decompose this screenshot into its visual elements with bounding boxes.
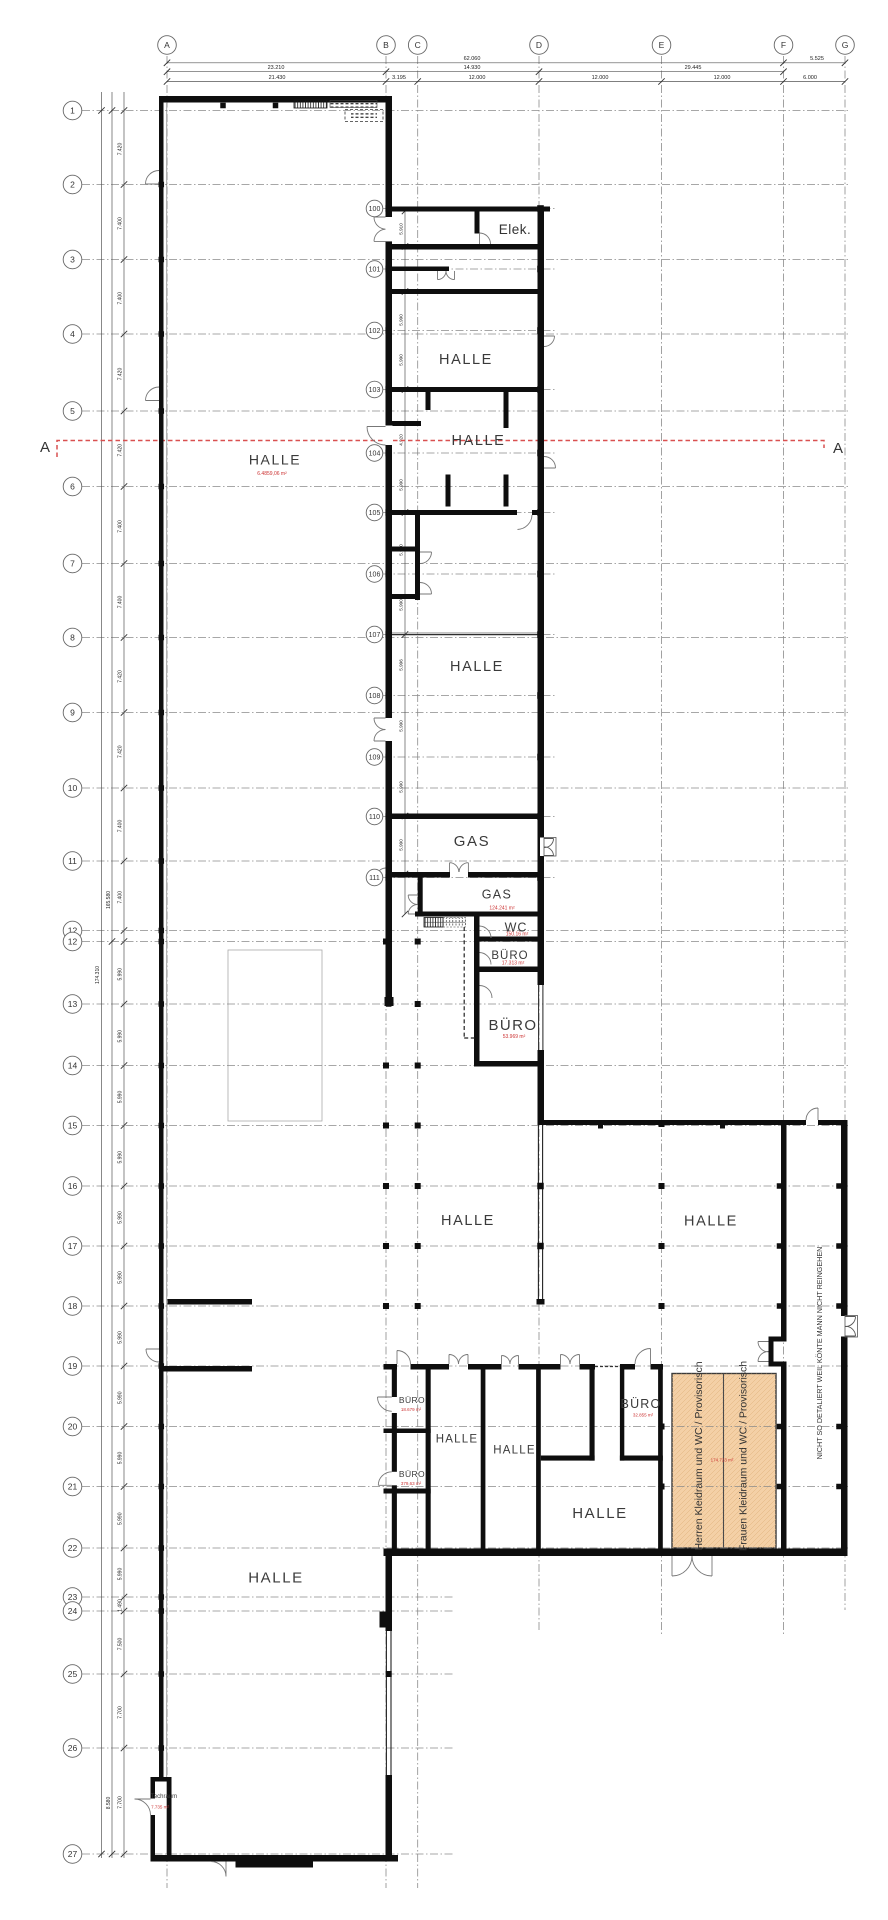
svg-text:7: 7 — [70, 559, 75, 569]
svg-text:7.400: 7.400 — [118, 292, 124, 305]
svg-text:GAS: GAS — [482, 888, 513, 902]
svg-text:F: F — [781, 40, 786, 50]
svg-text:1.490: 1.490 — [118, 1599, 124, 1612]
svg-text:7.500: 7.500 — [118, 1638, 124, 1651]
svg-text:5.910: 5.910 — [399, 223, 404, 235]
svg-text:24: 24 — [68, 1606, 78, 1616]
svg-text:22: 22 — [68, 1543, 78, 1553]
svg-text:108: 108 — [369, 693, 381, 700]
svg-text:A: A — [40, 439, 50, 456]
svg-text:5.996: 5.996 — [399, 659, 404, 671]
svg-text:7.400: 7.400 — [118, 520, 124, 533]
svg-text:5.990: 5.990 — [399, 354, 404, 366]
svg-text:7.420: 7.420 — [118, 368, 124, 381]
svg-text:7.420: 7.420 — [118, 670, 124, 683]
svg-text:5.990: 5.990 — [118, 1091, 124, 1104]
svg-text:5.990: 5.990 — [399, 781, 404, 793]
svg-text:102: 102 — [369, 328, 381, 335]
svg-text:5.990: 5.990 — [118, 1512, 124, 1525]
svg-text:GAS: GAS — [454, 833, 490, 850]
svg-text:D: D — [536, 40, 542, 50]
svg-text:G: G — [842, 40, 849, 50]
svg-text:2: 2 — [70, 180, 75, 190]
svg-text:5.990: 5.990 — [118, 1271, 124, 1284]
svg-text:BÜRO: BÜRO — [399, 1395, 425, 1405]
svg-text:7.700: 7.700 — [118, 1796, 124, 1809]
svg-text:16: 16 — [68, 1181, 78, 1191]
svg-text:17.313 m²: 17.313 m² — [502, 961, 525, 967]
svg-text:32.855 m²: 32.855 m² — [633, 1413, 654, 1418]
svg-text:5.990: 5.990 — [118, 968, 124, 981]
svg-text:12.000: 12.000 — [714, 75, 731, 81]
svg-text:7.735 m²: 7.735 m² — [151, 1805, 169, 1810]
svg-text:165.580: 165.580 — [106, 891, 112, 909]
svg-text:7.420: 7.420 — [118, 444, 124, 457]
svg-text:26: 26 — [68, 1743, 78, 1753]
svg-text:25: 25 — [68, 1669, 78, 1679]
svg-text:HALLE: HALLE — [452, 433, 506, 449]
svg-text:7.400: 7.400 — [118, 596, 124, 609]
svg-text:23.210: 23.210 — [268, 65, 285, 71]
svg-text:7.400: 7.400 — [118, 891, 124, 904]
svg-text:21.430: 21.430 — [269, 75, 286, 81]
svg-text:9: 9 — [70, 708, 75, 718]
svg-text:3.195: 3.195 — [392, 75, 406, 81]
svg-text:11: 11 — [68, 856, 77, 866]
svg-text:12.000: 12.000 — [592, 75, 609, 81]
svg-text:HALLE: HALLE — [436, 1434, 478, 1446]
svg-text:19: 19 — [68, 1361, 78, 1371]
svg-text:174.723 m²: 174.723 m² — [711, 1458, 734, 1463]
svg-text:18: 18 — [68, 1301, 78, 1311]
svg-text:4: 4 — [70, 329, 75, 339]
svg-text:5.990: 5.990 — [399, 314, 404, 326]
svg-text:110: 110 — [369, 814, 380, 821]
svg-text:A: A — [833, 440, 843, 457]
svg-text:104: 104 — [369, 451, 381, 458]
svg-text:BÜRO: BÜRO — [399, 1469, 425, 1479]
svg-text:150.16 m²: 150.16 m² — [506, 932, 529, 938]
svg-text:15: 15 — [68, 1121, 78, 1131]
svg-text:7.420: 7.420 — [118, 745, 124, 758]
svg-text:HALLE: HALLE — [441, 1213, 495, 1229]
svg-text:C: C — [415, 40, 421, 50]
svg-text:100: 100 — [369, 206, 381, 213]
svg-text:5.990: 5.990 — [399, 479, 404, 491]
svg-text:109: 109 — [369, 755, 381, 762]
svg-text:5.990: 5.990 — [118, 1030, 124, 1043]
svg-text:HALLE: HALLE — [249, 452, 301, 468]
svg-text:8.580: 8.580 — [106, 1797, 112, 1810]
svg-text:HALLE: HALLE — [248, 1570, 304, 1587]
svg-text:7.420: 7.420 — [118, 143, 124, 156]
svg-text:14.930: 14.930 — [464, 65, 481, 71]
svg-text:5.990: 5.990 — [118, 1211, 124, 1224]
svg-text:20: 20 — [68, 1422, 78, 1432]
svg-text:Elek.: Elek. — [499, 222, 532, 237]
svg-text:5.990: 5.990 — [399, 839, 404, 851]
svg-text:106: 106 — [369, 572, 381, 579]
svg-text:103: 103 — [369, 387, 381, 394]
svg-text:10: 10 — [68, 783, 78, 793]
svg-text:HALLE: HALLE — [439, 352, 493, 368]
svg-text:BÜRO: BÜRO — [489, 1016, 538, 1034]
svg-text:5: 5 — [70, 406, 75, 416]
svg-text:5.990: 5.990 — [399, 599, 404, 611]
svg-text:7.700: 7.700 — [118, 1706, 124, 1719]
svg-text:124.241 m²: 124.241 m² — [489, 906, 515, 912]
svg-text:E: E — [659, 40, 665, 50]
svg-text:5.990: 5.990 — [118, 1452, 124, 1465]
svg-text:14: 14 — [68, 1061, 78, 1071]
svg-text:6.000: 6.000 — [803, 75, 817, 81]
svg-text:105: 105 — [369, 510, 381, 517]
svg-text:1: 1 — [70, 106, 75, 116]
svg-text:12: 12 — [68, 937, 78, 947]
svg-text:5.990: 5.990 — [118, 1331, 124, 1344]
svg-text:101: 101 — [369, 267, 381, 274]
svg-text:BÜRO: BÜRO — [621, 1397, 662, 1411]
svg-text:5.990: 5.990 — [118, 1391, 124, 1404]
svg-text:HALLE: HALLE — [572, 1505, 628, 1522]
svg-text:27: 27 — [68, 1849, 78, 1859]
svg-text:111: 111 — [369, 875, 380, 882]
svg-text:B: B — [383, 40, 389, 50]
svg-text:Herren Kleidraum und WC / Prov: Herren Kleidraum und WC / Provisorisch — [693, 1361, 705, 1550]
svg-text:HALLE: HALLE — [493, 1445, 535, 1457]
svg-text:21: 21 — [68, 1482, 78, 1492]
svg-text:12.000: 12.000 — [469, 75, 486, 81]
svg-text:29.445: 29.445 — [685, 65, 702, 71]
svg-text:53.969 m²: 53.969 m² — [503, 1034, 526, 1040]
svg-text:5.525: 5.525 — [810, 56, 824, 62]
svg-text:5.990: 5.990 — [399, 720, 404, 732]
svg-text:HALLE: HALLE — [684, 1214, 738, 1230]
svg-text:13: 13 — [68, 999, 78, 1009]
svg-text:HALLE: HALLE — [450, 659, 504, 675]
svg-text:62.060: 62.060 — [464, 56, 481, 62]
svg-text:7.400: 7.400 — [118, 820, 124, 833]
svg-text:Techraum: Techraum — [151, 1794, 177, 1800]
svg-text:379,63 m²: 379,63 m² — [401, 1481, 422, 1486]
svg-text:8: 8 — [70, 633, 75, 643]
svg-text:NICHT SO DETALIERT WEIL KÖNTE: NICHT SO DETALIERT WEIL KÖNTE MANN NICHT… — [815, 1247, 824, 1460]
svg-text:7.400: 7.400 — [118, 217, 124, 230]
svg-text:23: 23 — [68, 1592, 78, 1602]
svg-text:3: 3 — [70, 255, 75, 265]
svg-text:5.990: 5.990 — [118, 1568, 124, 1581]
svg-text:17: 17 — [68, 1241, 78, 1251]
svg-text:Frauen Kleidraum und WC / Prov: Frauen Kleidraum und WC / Provisorisch — [738, 1361, 750, 1551]
svg-text:A: A — [164, 40, 170, 50]
svg-text:5.990: 5.990 — [118, 1151, 124, 1164]
svg-text:174.310: 174.310 — [95, 966, 101, 984]
svg-text:6: 6 — [70, 482, 75, 492]
svg-text:18.679 m²: 18.679 m² — [401, 1407, 422, 1412]
svg-text:6.4859,06 m²: 6.4859,06 m² — [257, 471, 287, 477]
svg-text:107: 107 — [369, 632, 381, 639]
